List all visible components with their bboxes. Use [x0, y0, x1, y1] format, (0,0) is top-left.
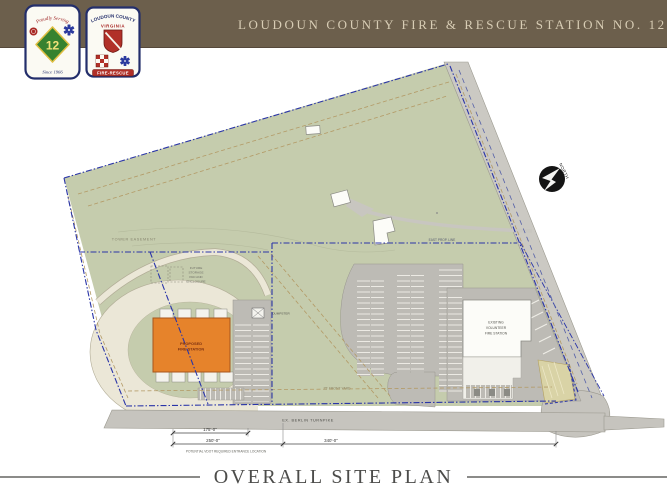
- dumpster-label: DUMPSTER: [272, 312, 290, 316]
- proposed-station-label: PROPOSED FIRE STATION: [178, 341, 205, 352]
- page-title: LOUDOUN COUNTY FIRE & RESCUE STATION NO.…: [238, 0, 661, 47]
- dimension-label-175: 175'-0": [203, 427, 217, 432]
- footer-rule-right: [467, 476, 667, 478]
- station12-bottom-text: Since 1966: [42, 70, 63, 75]
- svg-text:VOLUNTEER: VOLUNTEER: [486, 326, 507, 330]
- central-lot-entrance: [388, 372, 435, 407]
- station-12-logo: Proudly Serving 12 Since 1966: [24, 4, 81, 80]
- svg-text:PAD AND: PAD AND: [189, 275, 203, 279]
- existing-station-south-stalls: [466, 385, 512, 398]
- county-crest-icon: [104, 30, 122, 53]
- station-number: 12: [46, 39, 60, 53]
- county-banner-text: FIRE-RESCUE: [97, 71, 129, 76]
- svg-text:STORAGE: STORAGE: [188, 271, 203, 275]
- dimension-label-340: 340'-0": [324, 438, 338, 443]
- svg-text:FIRE STATION: FIRE STATION: [485, 332, 508, 336]
- checker-icon: [96, 55, 108, 67]
- dumpster-pad: [252, 308, 264, 318]
- seal-icon: [30, 28, 38, 36]
- svg-text:EXISTING: EXISTING: [488, 321, 504, 325]
- svg-text:FUTURE: FUTURE: [190, 266, 203, 270]
- east-prop-line-label: EAST PROP. LINE: [429, 238, 456, 242]
- svg-text:ENCLOSURE: ENCLOSURE: [186, 280, 205, 284]
- footer-rule-left: [0, 476, 200, 478]
- footer: OVERALL SITE PLAN: [0, 463, 667, 491]
- tower-easement-label: TOWER EASEMENT: [112, 238, 156, 242]
- county-fire-rescue-logo: LOUDOUN COUNTY VIRGINIA FIRE-RESCUE: [85, 6, 141, 78]
- north-arrow: NORTH: [539, 162, 570, 192]
- small-building-3: [306, 126, 321, 135]
- front-yard-label: 25' FRONT YARD: [323, 387, 351, 391]
- berlin-turnpike-road: [104, 410, 605, 432]
- plan-title: OVERALL SITE PLAN: [214, 466, 454, 489]
- station-bays-south: [156, 372, 233, 382]
- svg-text:FIRE STATION: FIRE STATION: [178, 347, 205, 352]
- turnpike-label: EX. BERLIN TURNPIKE: [282, 418, 334, 423]
- road-east-tail: [604, 416, 664, 430]
- svg-text:PROPOSED: PROPOSED: [180, 341, 202, 346]
- county-virginia-text: VIRGINIA: [101, 24, 126, 29]
- dimension-label-250: 250'-0": [206, 438, 220, 443]
- vdot-note: POTENTIAL VDOT REQUIRED ENTRANCE LOCATIO…: [186, 450, 267, 454]
